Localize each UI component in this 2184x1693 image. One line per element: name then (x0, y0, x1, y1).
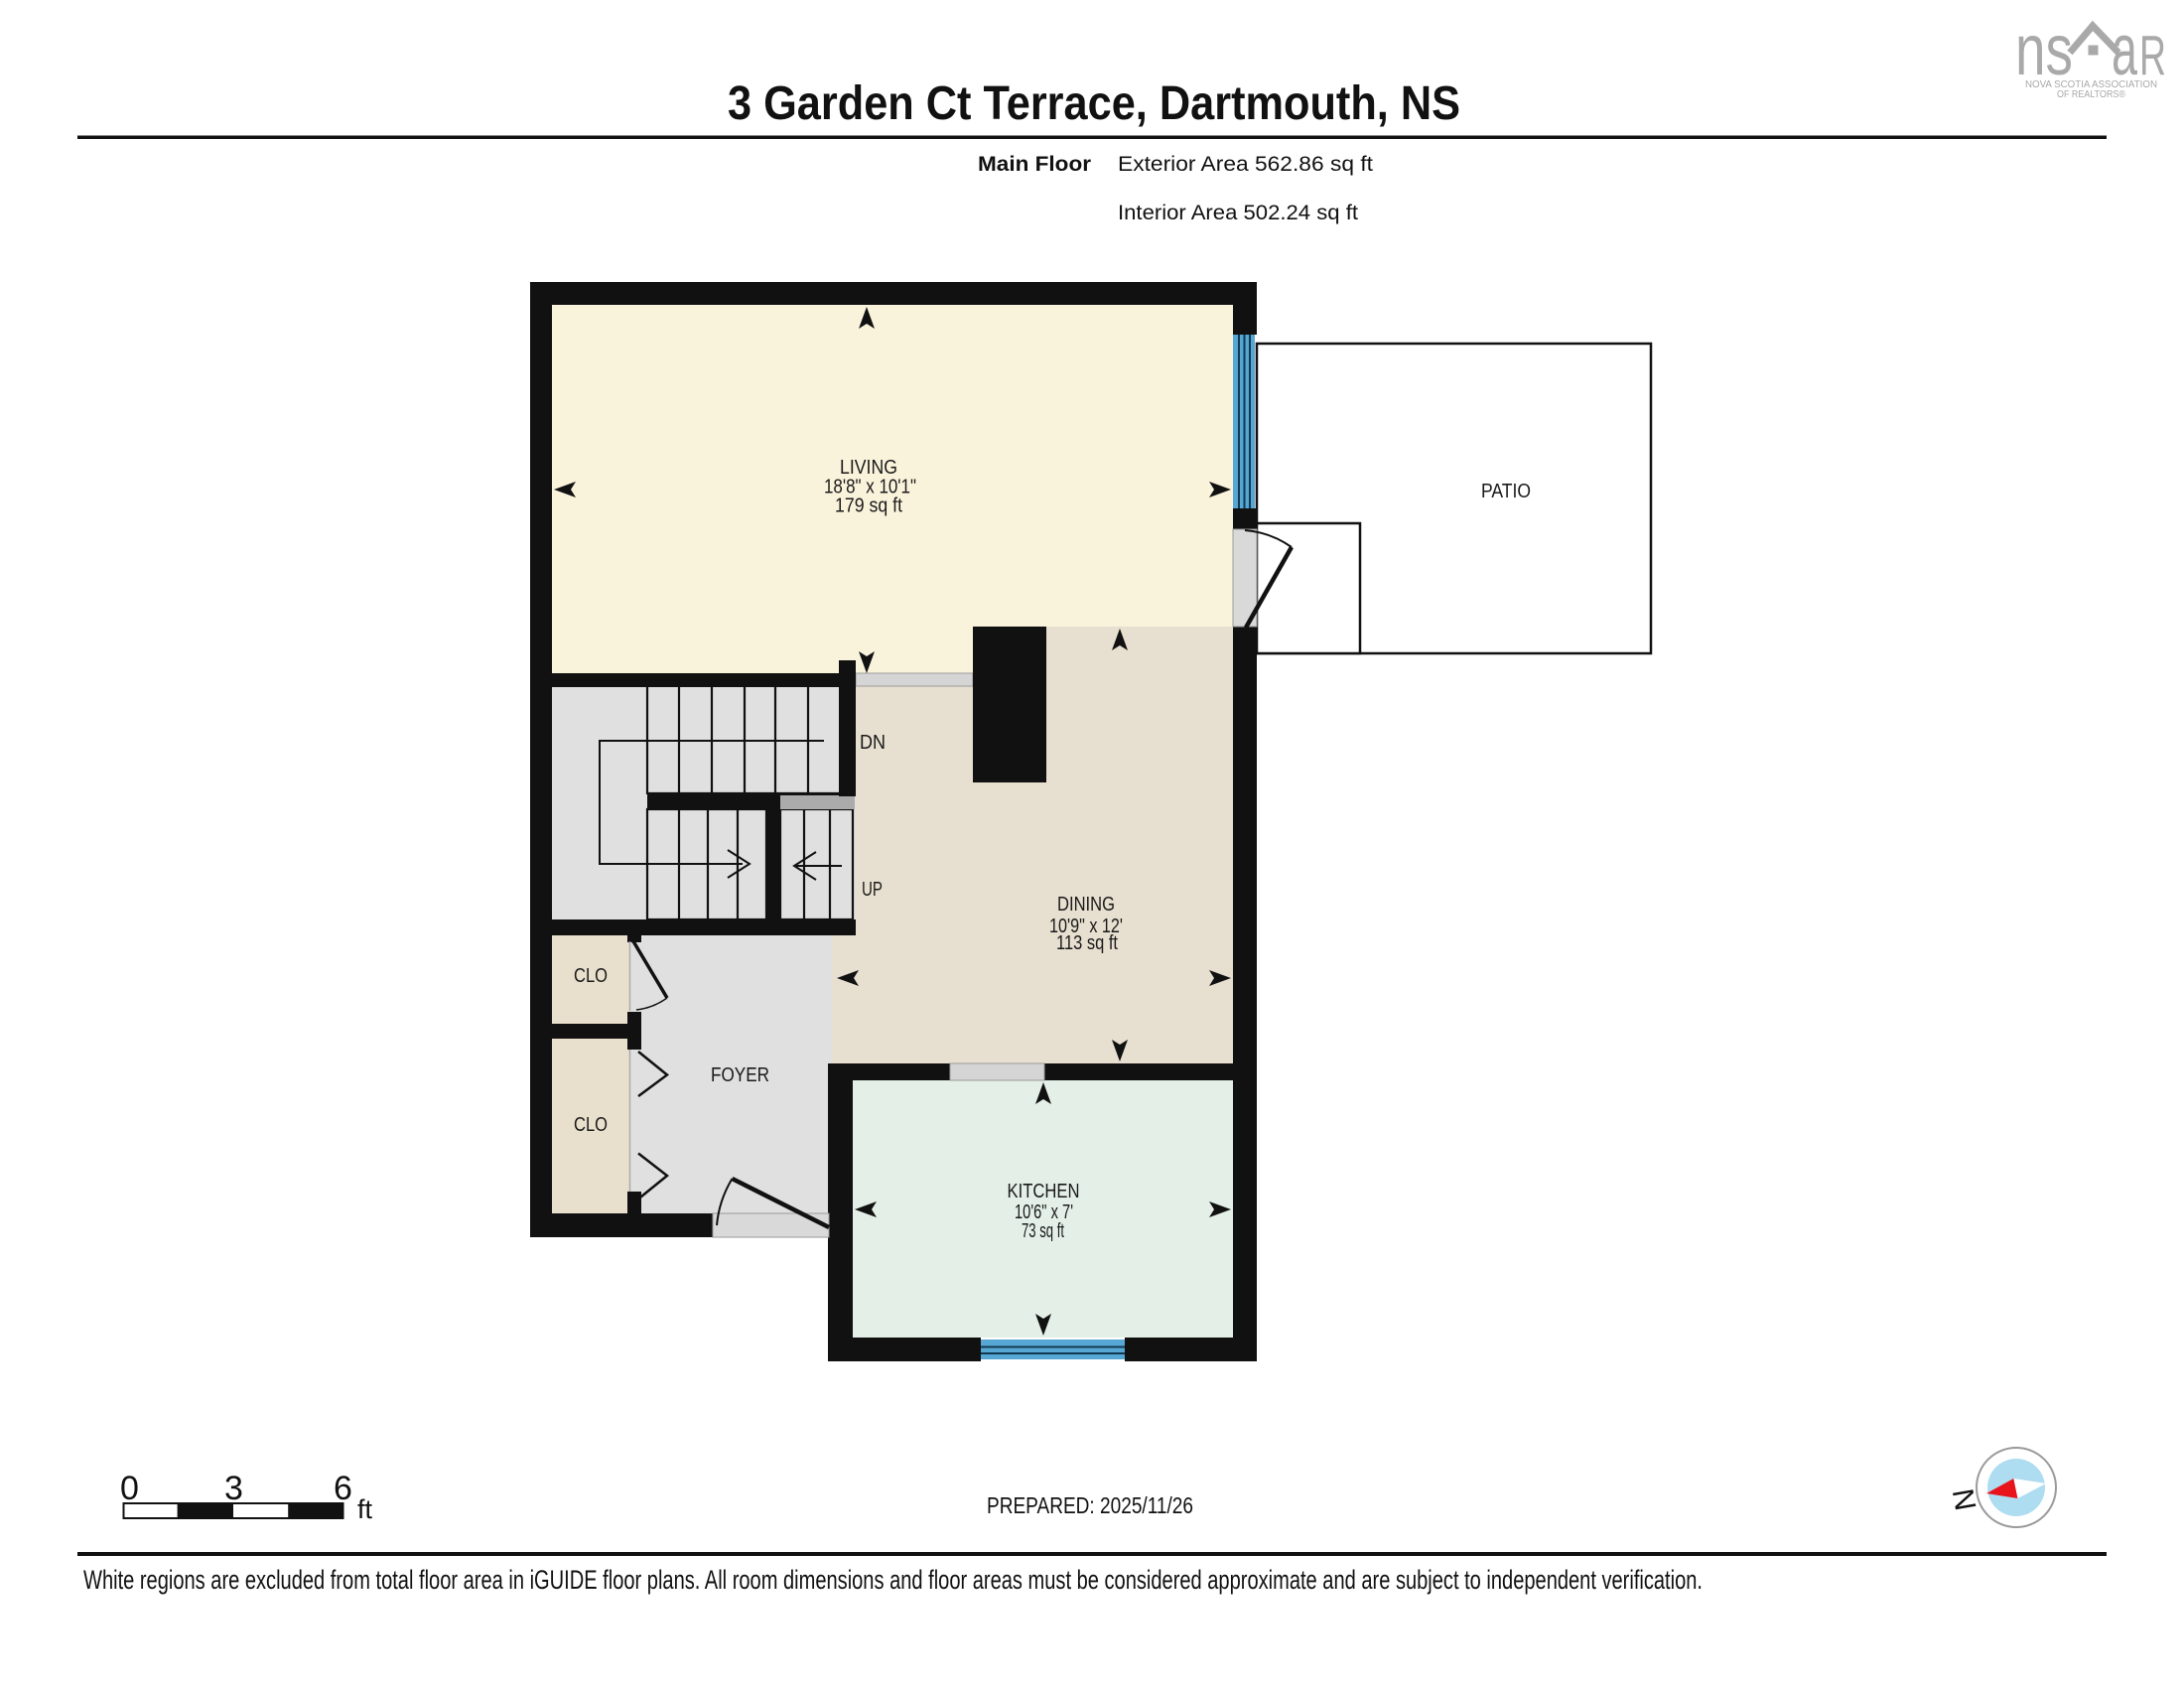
svg-text:0: 0 (120, 1470, 139, 1507)
svg-text:6: 6 (334, 1470, 352, 1507)
svg-text:R: R (2139, 24, 2166, 87)
svg-text:CLO: CLO (574, 965, 608, 987)
svg-text:CLO: CLO (574, 1114, 608, 1136)
svg-text:DINING: DINING (1057, 894, 1115, 916)
svg-text:ns: ns (2015, 11, 2073, 90)
svg-text:179 sq ft: 179 sq ft (835, 495, 902, 517)
svg-text:PATIO: PATIO (1481, 481, 1531, 502)
svg-text:UP: UP (862, 879, 883, 901)
svg-text:3: 3 (224, 1470, 243, 1507)
svg-text:Main Floor: Main Floor (978, 153, 1091, 176)
svg-text:DN: DN (860, 732, 886, 754)
svg-text:FOYER: FOYER (711, 1064, 769, 1086)
svg-text:PREPARED: 2025/11/26: PREPARED: 2025/11/26 (987, 1492, 1193, 1518)
svg-text:Interior Area 502.24 sq ft: Interior Area 502.24 sq ft (1118, 202, 1358, 224)
svg-text:3 Garden Ct Terrace, Dartmouth: 3 Garden Ct Terrace, Dartmouth, NS (728, 77, 1460, 130)
svg-text:White regions are excluded fro: White regions are excluded from total fl… (83, 1565, 1703, 1595)
svg-text:OF REALTORS®: OF REALTORS® (2057, 89, 2126, 100)
svg-text:Exterior Area 562.86 sq ft: Exterior Area 562.86 sq ft (1118, 153, 1373, 176)
svg-text:73 sq ft: 73 sq ft (1022, 1220, 1064, 1242)
svg-text:KITCHEN: KITCHEN (1008, 1181, 1080, 1202)
svg-text:ft: ft (357, 1494, 373, 1524)
svg-text:113 sq ft: 113 sq ft (1056, 932, 1118, 954)
